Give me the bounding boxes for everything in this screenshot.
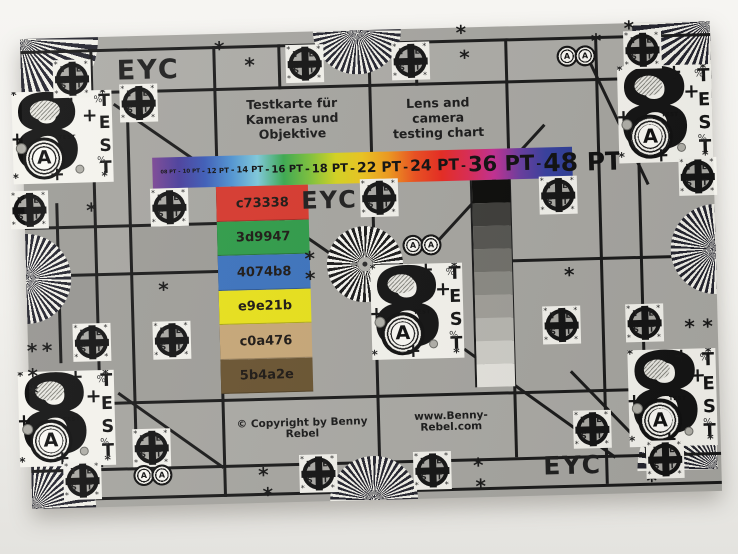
crosshair-letter: E: [322, 460, 328, 468]
crosshair-letter: T: [174, 210, 180, 218]
grayscale-step: [475, 294, 514, 318]
fan-rays: [25, 233, 72, 324]
fan-rays: [313, 29, 402, 75]
corner-mark: *: [624, 32, 628, 40]
crosshair-target: ****TEST: [119, 84, 158, 123]
crosshair-letter: E: [646, 37, 652, 45]
asterisk-mark: *: [459, 47, 470, 67]
crosshair-letter: S: [71, 484, 77, 492]
corner-mark: *: [625, 61, 629, 69]
crosshair-letter: T: [156, 450, 162, 458]
corner-mark: *: [151, 190, 155, 198]
grayscale-step: [477, 363, 516, 387]
corner-mark: *: [679, 159, 683, 167]
asterisk-mark: *: [28, 383, 39, 403]
crosshair-letter: S: [160, 343, 166, 351]
eyc-label-top-left: EYC: [116, 56, 180, 85]
corner-asterisk: *: [101, 171, 108, 183]
fan-rays: [670, 204, 717, 295]
crosshair-target: ****TEST: [63, 461, 102, 500]
test-eight-block: 8ATEST++++%%****TEST: [627, 348, 718, 447]
corner-mark: *: [153, 323, 157, 331]
corner-asterisk: *: [707, 433, 714, 446]
crosshair-letter: E: [414, 48, 420, 56]
plus-mark: +: [82, 107, 98, 126]
corner-mark: *: [391, 179, 395, 187]
corner-mark: *: [627, 334, 631, 342]
corner-mark: *: [362, 209, 366, 217]
double-eight-mark: AA: [556, 45, 596, 67]
crosshair-letter: T: [309, 66, 315, 74]
corner-mark: *: [423, 71, 427, 79]
corner-mark: *: [133, 430, 137, 438]
asterisk-mark: *: [158, 279, 169, 299]
crosshair-target: ****TEST: [285, 44, 324, 83]
swatch-row: 5b4a2e: [220, 357, 313, 394]
crosshair-letter: T: [633, 310, 639, 318]
swatch-hex-label: c73338: [236, 196, 289, 210]
corner-mark: *: [604, 411, 608, 419]
title-english-line2: testing chart: [379, 124, 497, 142]
corner-asterisk: *: [700, 64, 707, 75]
crosshair-target: ****TEST: [646, 440, 685, 479]
corner-asterisk: *: [99, 90, 106, 100]
crosshair-vbar: [148, 431, 156, 465]
crosshair-target: ****TEST: [678, 157, 717, 196]
crosshair-vbar: [375, 181, 383, 215]
eyc-label-center: EYC: [301, 187, 358, 212]
corner-mark: *: [605, 440, 609, 448]
crosshair-vbar: [165, 190, 173, 224]
bar-pt-label: 10 PT: [183, 169, 200, 175]
crosshair-target: ****TEST: [623, 30, 662, 69]
crosshair-letter: T: [649, 325, 655, 333]
crosshair-target: ****TEST: [625, 303, 664, 342]
crosshair-vbar: [428, 453, 436, 487]
corner-mark: *: [415, 482, 419, 490]
swatch-row: 3d9947: [217, 219, 310, 256]
crosshair-letter: S: [654, 462, 660, 470]
fan-pattern: [329, 455, 418, 501]
swatch-hex-label: c0a476: [239, 334, 292, 348]
asterisk-mark: *: [305, 268, 316, 288]
crosshair-letter: E: [702, 163, 708, 171]
asterisk-mark: *: [244, 55, 255, 75]
corner-mark: *: [12, 221, 16, 229]
corner-mark: *: [656, 304, 660, 312]
crosshair-letter: T: [702, 179, 708, 187]
corner-asterisk: *: [629, 435, 636, 447]
fan-pattern: [25, 233, 72, 324]
asterisk-mark: *: [86, 200, 97, 220]
corner-asterisk: *: [370, 263, 376, 276]
corner-mark: *: [84, 89, 88, 97]
crosshair-letter: T: [76, 81, 82, 89]
crosshair-letter: T: [80, 330, 86, 338]
corner-mark: *: [392, 43, 396, 51]
plus-mark: +: [673, 348, 690, 366]
corner-mark: *: [41, 192, 45, 200]
bar-separator: -: [350, 162, 355, 174]
corner-mark: *: [444, 452, 448, 460]
crosshair-letter: T: [307, 461, 313, 469]
crosshair-vbar: [558, 308, 566, 342]
corner-mark: *: [317, 74, 321, 82]
grayscale-step: [475, 317, 514, 341]
crosshair-letter: E: [562, 182, 568, 190]
small-test-text: TEST: [63, 416, 80, 422]
corner-mark: *: [393, 72, 397, 80]
title-english: Lens and camera testing chart: [379, 95, 498, 142]
crosshair-letter: T: [176, 343, 182, 351]
crosshair-vbar: [68, 62, 76, 96]
crosshair-vbar: [694, 159, 702, 193]
asterisk-mark: *: [684, 317, 695, 337]
corner-mark: *: [657, 333, 661, 341]
crosshair-letter: S: [307, 476, 313, 484]
grayscale-step: [472, 202, 511, 226]
corner-mark: *: [300, 456, 304, 464]
crosshair-letter: T: [60, 66, 66, 74]
corner-asterisk: *: [12, 173, 19, 184]
test-eight-block: 8ATEST++++%%****TEST: [11, 90, 113, 185]
grayscale-step: [474, 248, 513, 272]
test-eight-block: 8ATEST++++%%****TEST: [370, 263, 464, 360]
crosshair-letter: T: [597, 432, 603, 440]
bar-pt-label: 22 PT: [357, 160, 402, 175]
vertical-test-letter: S: [703, 398, 716, 416]
percent-mark: %: [97, 156, 106, 165]
asterisk-mark: *: [262, 485, 273, 505]
corner-mark: *: [54, 90, 58, 98]
corner-asterisk: *: [19, 456, 26, 468]
crosshair-letter: S: [547, 198, 553, 206]
gray-dot: [684, 426, 693, 435]
corner-mark: *: [677, 470, 681, 478]
percent-mark: %: [100, 438, 109, 448]
bar-pt-label: 14 PT: [236, 166, 263, 175]
crosshair-letter: E: [383, 185, 389, 193]
corner-mark: *: [74, 354, 78, 362]
crosshair-letter: S: [633, 326, 639, 334]
corner-asterisk: *: [453, 346, 460, 359]
small-test-text: TEST: [661, 111, 678, 117]
percent-mark: %: [698, 134, 707, 144]
corner-mark: *: [414, 453, 418, 461]
crosshair-vbar: [639, 33, 647, 67]
copyright-text: © Copyright by Benny Rebel: [222, 416, 382, 441]
corner-mark: *: [182, 218, 186, 226]
crosshair-vbar: [554, 178, 562, 212]
corner-mark: *: [626, 305, 630, 313]
grayscale-step: [474, 271, 513, 295]
star-center-dot: [362, 261, 368, 267]
corner-mark: *: [422, 42, 426, 50]
corner-mark: *: [654, 31, 658, 39]
swatch-row: c73338: [216, 185, 309, 222]
crosshair-target: ****TEST: [72, 323, 111, 362]
corner-asterisk: *: [618, 152, 625, 164]
bar-separator: -: [265, 165, 269, 175]
crosshair-letter: E: [436, 457, 442, 465]
corner-mark: *: [65, 492, 69, 500]
crosshair-vbar: [88, 325, 96, 359]
gray-dot: [79, 446, 88, 455]
plus-mark: +: [49, 166, 65, 184]
corner-mark: *: [163, 429, 167, 437]
asterisk-mark: *: [702, 316, 713, 336]
crosshair-letter: E: [142, 90, 148, 98]
corner-mark: *: [183, 322, 187, 330]
bar-separator: -: [178, 170, 180, 176]
double-eight-mark: AA: [133, 464, 173, 486]
crosshair-target: ****TEST: [542, 306, 581, 345]
bar-separator: -: [202, 168, 205, 175]
crosshair-vbar: [588, 412, 596, 446]
crosshair-target: ****TEST: [53, 59, 92, 98]
crosshair-letter: T: [18, 197, 24, 205]
corner-mark: *: [573, 307, 577, 315]
small-test-text: TEST: [413, 309, 430, 315]
crosshair-target: ****TEST: [539, 176, 578, 215]
gray-dot: [75, 164, 84, 173]
crosshair-letter: S: [80, 345, 86, 353]
corner-asterisk: *: [11, 90, 17, 102]
corner-asterisk: *: [705, 348, 712, 359]
test-chart: ****TEST****TEST****TEST****TEST****TEST…: [20, 21, 722, 509]
fan-rays: [329, 455, 418, 501]
crosshair-letter: S: [158, 210, 164, 218]
corner-mark: *: [571, 206, 575, 214]
asterisk-mark: *: [214, 39, 225, 59]
double-eight-mark: AA: [402, 234, 442, 256]
corner-mark: *: [301, 485, 305, 493]
plus-mark: +: [653, 145, 670, 164]
crosshair-letter: T: [669, 462, 675, 470]
double-eight-circle: A: [574, 45, 596, 67]
corner-asterisk: *: [104, 453, 111, 466]
crosshair-vbar: [301, 47, 309, 81]
corner-mark: *: [121, 114, 125, 122]
corner-mark: *: [575, 441, 579, 449]
crosshair-target: ****TEST: [132, 428, 171, 467]
crosshair-letter: T: [686, 164, 692, 172]
crosshair-letter: S: [686, 179, 692, 187]
crosshair-letter: E: [648, 310, 654, 318]
corner-mark: *: [94, 462, 98, 470]
gray-dot: [16, 143, 27, 154]
crosshair-letter: S: [399, 64, 405, 72]
title-english-line1: Lens and camera: [379, 95, 498, 128]
fan-pattern: [313, 29, 402, 75]
corner-asterisk: *: [371, 348, 378, 360]
crosshair-letter: T: [96, 345, 102, 353]
corner-mark: *: [184, 351, 188, 359]
corner-mark: *: [286, 46, 290, 54]
asterisk-mark: *: [475, 476, 486, 496]
corner-mark: *: [151, 114, 155, 122]
corner-mark: *: [103, 324, 107, 332]
crosshair-letter: S: [293, 67, 299, 75]
grayscale-step: [472, 179, 511, 203]
corner-mark: *: [647, 471, 651, 479]
crosshair-letter: E: [173, 194, 179, 202]
crosshair-letter: E: [669, 446, 675, 454]
corner-mark: *: [680, 188, 684, 196]
crosshair-vbar: [661, 442, 669, 476]
small-test-text: TEST: [669, 395, 686, 401]
corner-mark: *: [574, 336, 578, 344]
corner-mark: *: [54, 61, 58, 69]
vertical-test-letter: S: [698, 114, 711, 132]
swatch-hex-label: 5b4a2e: [240, 368, 294, 382]
corner-mark: *: [541, 206, 545, 214]
corner-mark: *: [710, 187, 714, 195]
crosshair-letter: T: [546, 182, 552, 190]
crosshair-vbar: [135, 86, 143, 120]
bar-pt-label: 48 PT: [543, 148, 623, 175]
bar-separator: -: [305, 163, 310, 175]
vertical-test-letter: S: [99, 138, 112, 155]
corner-mark: *: [154, 352, 158, 360]
crosshair-letter: T: [293, 51, 299, 59]
crosshair-letter: S: [631, 53, 637, 61]
website-text: www.Benny-Rebel.com: [385, 409, 518, 433]
pattern-layer: ****TEST****TEST****TEST****TEST****TEST…: [20, 21, 710, 39]
corner-mark: *: [361, 180, 365, 188]
grayscale-step: [473, 225, 512, 249]
swatch-hex-label: 3d9947: [236, 230, 291, 244]
crosshair-letter: T: [566, 328, 572, 336]
crosshair-letter: T: [160, 328, 166, 336]
corner-mark: *: [655, 60, 659, 68]
crosshair-vbar: [79, 464, 87, 498]
corner-mark: *: [709, 158, 713, 166]
crosshair-letter: T: [399, 48, 405, 56]
crosshair-target: ****TEST: [360, 178, 399, 217]
crosshair-letter: S: [368, 201, 374, 209]
vertical-test-letter: E: [101, 396, 114, 414]
bar-pt-label: 24 PT: [410, 157, 459, 174]
plus-mark: +: [418, 263, 434, 280]
corner-mark: *: [181, 189, 185, 197]
crosshair-letter: T: [158, 195, 164, 203]
corner-mark: *: [544, 336, 548, 344]
swatch-hex-label: 4074b8: [237, 265, 292, 279]
crosshair-target: ****TEST: [299, 454, 338, 493]
color-swatch-column: c733383d99474074b8e9e21bc0a4765b4a2e: [216, 185, 313, 394]
corner-mark: *: [445, 481, 449, 489]
crosshair-letter: E: [155, 435, 161, 443]
crosshair-letter: S: [18, 213, 24, 221]
asterisk-mark: *: [455, 22, 466, 42]
corner-mark: *: [73, 325, 77, 333]
plus-mark: +: [85, 387, 101, 406]
percent-mark: %: [449, 331, 458, 341]
grayscale-step: [476, 340, 515, 364]
swatch-row: e9e21b: [219, 288, 312, 325]
crosshair-letter: S: [550, 328, 556, 336]
plus-mark: +: [435, 280, 451, 299]
asterisk-mark: *: [473, 455, 484, 475]
crosshair-vbar: [407, 44, 415, 78]
swatch-row: c0a476: [220, 323, 313, 360]
fine-texture: [30, 100, 60, 120]
crosshair-letter: E: [86, 468, 92, 476]
crosshair-target: ****TEST: [391, 41, 430, 80]
swatch-row: 4074b8: [218, 254, 311, 291]
title-german-line2: Kameras und Objektive: [218, 110, 367, 143]
corner-mark: *: [104, 353, 108, 361]
plus-mark: +: [405, 342, 421, 360]
corner-mark: *: [42, 220, 46, 228]
corner-asterisk: *: [451, 263, 458, 274]
crosshair-letter: T: [127, 90, 133, 98]
fan-pattern: [670, 204, 717, 295]
crosshair-vbar: [641, 306, 649, 340]
crosshair-letter: E: [33, 197, 39, 205]
bar-pt-label: 08 PT: [160, 170, 176, 175]
crosshair-letter: E: [96, 329, 102, 337]
plus-mark: +: [689, 366, 706, 386]
bar-pt-label: 12 PT: [207, 168, 229, 176]
corner-mark: *: [11, 192, 15, 200]
bar-separator: -: [231, 167, 235, 176]
photo-scene: ****TEST****TEST****TEST****TEST****TEST…: [0, 0, 738, 554]
crosshair-vbar: [314, 456, 322, 490]
title-german: Testkarte für Kameras und Objektive: [218, 95, 367, 143]
crosshair-letter: T: [653, 447, 659, 455]
crosshair-letter: T: [647, 52, 653, 60]
gray-dot: [677, 142, 686, 151]
crosshair-letter: S: [60, 82, 66, 90]
crosshair-letter: T: [367, 185, 373, 193]
small-test-text: TEST: [58, 135, 75, 141]
crosshair-letter: E: [176, 327, 182, 335]
corner-mark: *: [574, 412, 578, 420]
crosshair-letter: T: [562, 198, 568, 206]
corner-asterisk: *: [617, 64, 623, 77]
eyc-label-bottom-right: EYC: [543, 452, 602, 479]
crosshair-letter: E: [596, 416, 602, 424]
corner-mark: *: [392, 208, 396, 216]
shade-panel: [129, 222, 218, 272]
corner-mark: *: [95, 491, 99, 499]
corner-mark: *: [543, 307, 547, 315]
crosshair-letter: S: [581, 432, 587, 440]
corner-mark: *: [84, 60, 88, 68]
vertical-test-letter: S: [450, 312, 463, 330]
swatch-hex-label: e9e21b: [238, 299, 292, 313]
crosshair-letter: T: [383, 200, 389, 208]
bar-separator: -: [403, 160, 408, 172]
bar-pt-label: 18 PT: [312, 162, 349, 174]
corner-mark: *: [64, 463, 68, 471]
crosshair-letter: T: [631, 37, 637, 45]
double-eight-circle: A: [420, 234, 442, 256]
vertical-test-letter: S: [101, 419, 114, 437]
plus-mark: +: [666, 64, 683, 82]
corner-mark: *: [330, 455, 334, 463]
crosshair-vbar: [168, 323, 176, 357]
crosshair-letter: T: [550, 312, 556, 320]
crosshair-letter: E: [565, 312, 571, 320]
crosshair-target: ****TEST: [152, 321, 191, 360]
crosshair-letter: T: [581, 417, 587, 425]
corner-mark: *: [540, 177, 544, 185]
crosshair-letter: T: [437, 473, 443, 481]
asterisk-mark: *: [27, 341, 38, 361]
